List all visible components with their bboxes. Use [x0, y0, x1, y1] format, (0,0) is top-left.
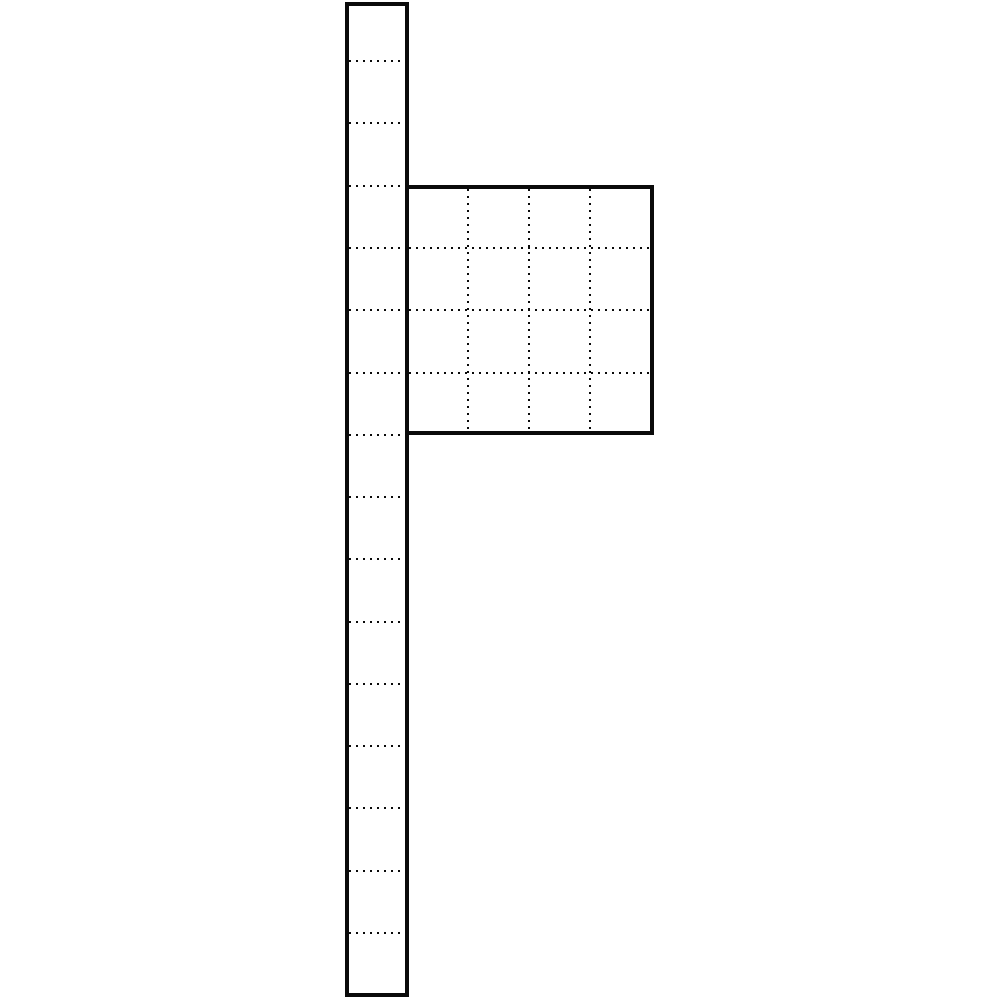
post-divider-line — [349, 309, 405, 311]
post-divider-line — [349, 745, 405, 747]
post-divider-line — [349, 870, 405, 872]
post-divider-line — [349, 122, 405, 124]
post-divider-line — [349, 60, 405, 62]
post-divider-line — [349, 558, 405, 560]
post-divider-line — [349, 185, 405, 187]
post-divider-line — [349, 932, 405, 934]
post-divider-line — [349, 807, 405, 809]
post-divider-line — [349, 496, 405, 498]
post-divider-line — [349, 621, 405, 623]
panel-grid-line-vertical — [467, 189, 469, 431]
post-outline — [345, 2, 409, 997]
panel-grid-line-vertical — [528, 189, 530, 431]
post-divider-line — [349, 247, 405, 249]
post-divider-line — [349, 683, 405, 685]
post-divider-line — [349, 372, 405, 374]
drawing-canvas — [0, 0, 1000, 1000]
panel-grid-line-vertical — [589, 189, 591, 431]
post-divider-line — [349, 434, 405, 436]
